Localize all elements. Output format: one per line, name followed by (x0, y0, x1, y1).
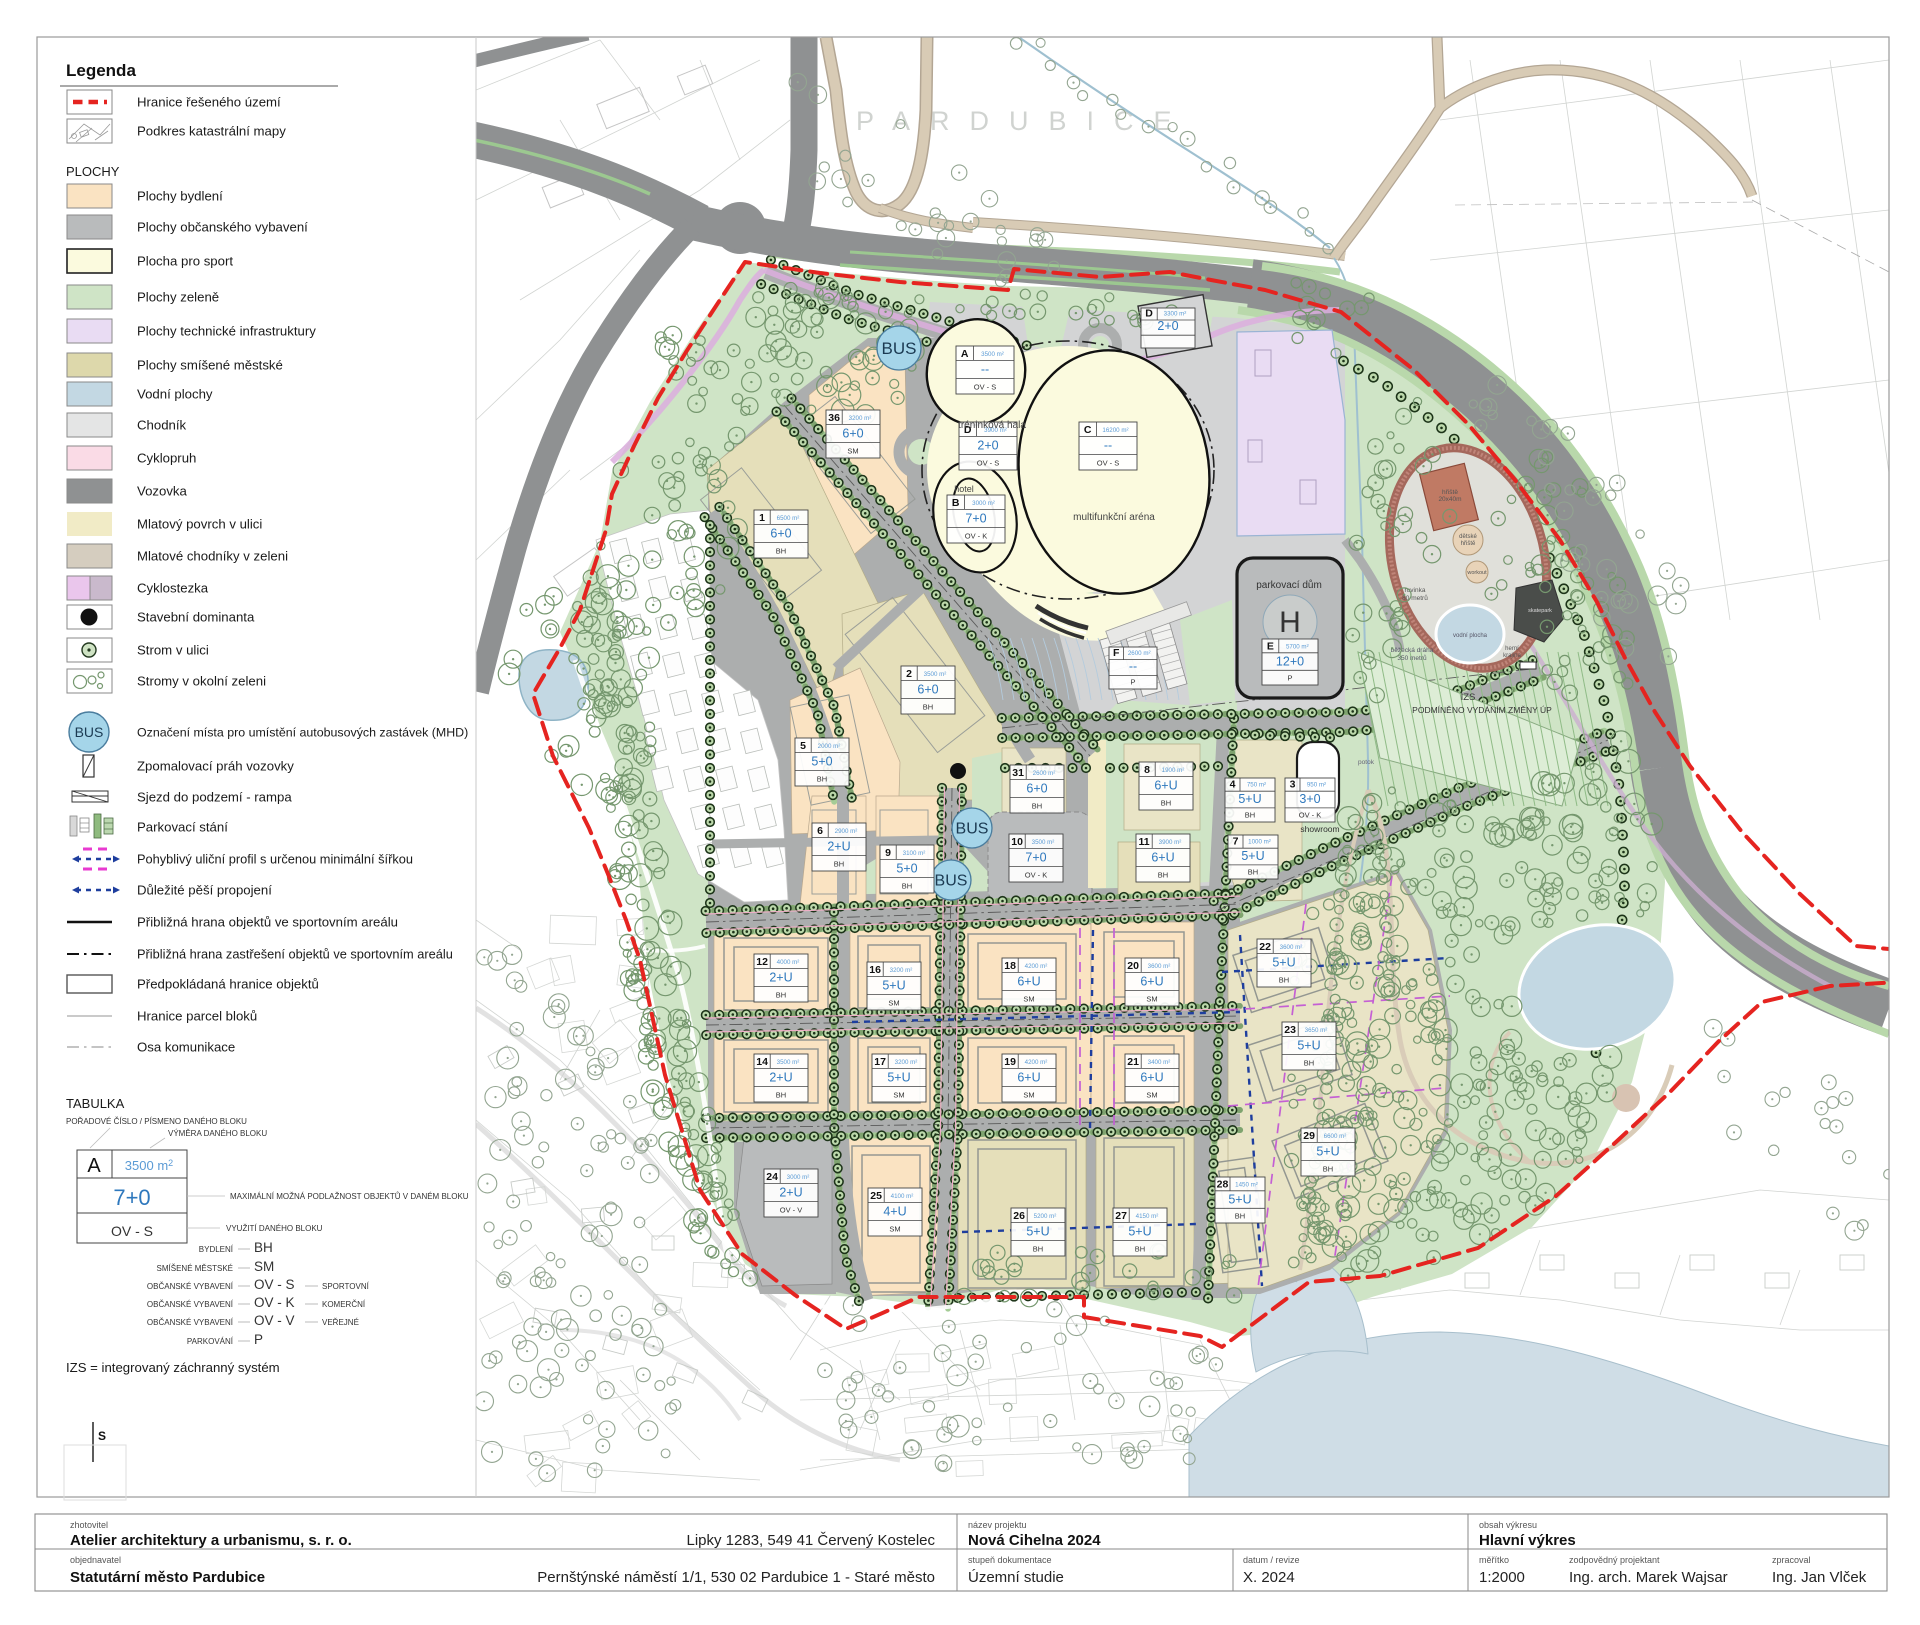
svg-text:21: 21 (1127, 1056, 1139, 1068)
svg-text:Plochy zeleně: Plochy zeleně (137, 290, 219, 305)
svg-text:Důležité pěší propojení: Důležité pěší propojení (137, 883, 272, 898)
svg-text:Nová Cihelna 2024: Nová Cihelna 2024 (968, 1532, 1101, 1549)
svg-text:OV - K: OV - K (1299, 811, 1322, 820)
svg-text:obsah výkresu: obsah výkresu (1479, 1520, 1537, 1530)
svg-text:3: 3 (1290, 779, 1296, 791)
svg-text:5+U: 5+U (1241, 849, 1264, 863)
svg-text:Vodní plochy: Vodní plochy (137, 387, 213, 402)
svg-text:2+U: 2+U (769, 971, 792, 985)
svg-text:SM: SM (1146, 1091, 1157, 1100)
svg-text:3500 m²: 3500 m² (924, 671, 947, 678)
svg-text:2600 m²: 2600 m² (1033, 770, 1056, 777)
svg-text:80 metrů: 80 metrů (1402, 594, 1428, 602)
svg-text:2+U: 2+U (827, 840, 850, 854)
svg-text:2+U: 2+U (779, 1186, 802, 1200)
svg-text:A: A (87, 1155, 101, 1177)
svg-text:PLOCHY: PLOCHY (66, 164, 120, 179)
svg-text:3200 m²: 3200 m² (895, 1059, 918, 1066)
svg-text:950 m²: 950 m² (1307, 782, 1326, 789)
svg-text:7+0: 7+0 (113, 1185, 150, 1210)
svg-text:4200 m²: 4200 m² (1025, 1059, 1048, 1066)
svg-text:6+U: 6+U (1017, 1071, 1040, 1085)
svg-text:3500 m²: 3500 m² (777, 1059, 800, 1066)
svg-text:5+0: 5+0 (896, 862, 917, 876)
svg-text:Stromy v okolní zeleni: Stromy v okolní zeleni (137, 674, 266, 689)
svg-text:běžecká dráha: běžecká dráha (1391, 647, 1434, 654)
svg-text:Sjezd do podzemí - rampa: Sjezd do podzemí - rampa (137, 790, 292, 805)
svg-text:Plochy smíšené městské: Plochy smíšené městské (137, 358, 283, 373)
svg-text:VYUŽITÍ DANÉHO BLOKU: VYUŽITÍ DANÉHO BLOKU (226, 1224, 323, 1233)
svg-text:POŘADOVÉ ČÍSLO / PÍSMENO DANÉH: POŘADOVÉ ČÍSLO / PÍSMENO DANÉHO BLOKU (66, 1117, 247, 1126)
svg-text:BH: BH (776, 547, 786, 556)
svg-text:9: 9 (885, 847, 891, 859)
svg-text:BH: BH (1304, 1059, 1314, 1068)
svg-text:4200 m²: 4200 m² (1025, 963, 1048, 970)
svg-text:2+0: 2+0 (977, 439, 998, 453)
svg-text:3600 m²: 3600 m² (1280, 944, 1303, 951)
svg-text:6600 m²: 6600 m² (1324, 1133, 1347, 1140)
svg-text:Parkovací stání: Parkovací stání (137, 820, 228, 835)
svg-text:Atelier architektury a urbanis: Atelier architektury a urbanismu, s. r. … (70, 1532, 352, 1549)
svg-text:12: 12 (756, 956, 768, 968)
svg-text:5+U: 5+U (1272, 956, 1295, 970)
svg-text:6: 6 (817, 825, 823, 837)
svg-text:BUS: BUS (75, 724, 104, 740)
svg-text:17: 17 (874, 1056, 886, 1068)
svg-text:6+U: 6+U (1140, 1071, 1163, 1085)
svg-text:3400 m²: 3400 m² (1148, 1059, 1171, 1066)
svg-text:BH: BH (1135, 1245, 1145, 1254)
svg-text:BUS: BUS (935, 873, 968, 890)
svg-text:BH: BH (1279, 976, 1289, 985)
svg-text:5+0: 5+0 (811, 755, 832, 769)
svg-text:Ing. Jan Vlček: Ing. Jan Vlček (1772, 1569, 1867, 1586)
svg-text:SM: SM (888, 999, 899, 1008)
svg-text:C: C (1084, 424, 1092, 436)
svg-text:3100 m²: 3100 m² (903, 850, 926, 857)
svg-text:BH: BH (834, 860, 844, 869)
svg-text:16200 m²: 16200 m² (1102, 427, 1128, 434)
svg-text:--: -- (1129, 660, 1137, 674)
svg-text:5700 m²: 5700 m² (1286, 643, 1309, 650)
svg-text:2+U: 2+U (769, 1071, 792, 1085)
svg-text:název projektu: název projektu (968, 1520, 1027, 1530)
svg-text:Plochy technické infrastruktur: Plochy technické infrastruktury (137, 324, 316, 339)
svg-text:24: 24 (766, 1171, 778, 1183)
svg-text:IZS = integrovaný záchranný sy: IZS = integrovaný záchranný systém (66, 1360, 280, 1375)
svg-text:BH: BH (902, 882, 912, 891)
svg-text:3300 m²: 3300 m² (1164, 311, 1187, 318)
svg-text:Označení místa pro umístění au: Označení místa pro umístění autobusových… (137, 726, 468, 740)
svg-text:OV - S: OV - S (111, 1223, 153, 1239)
svg-text:Lipky 1283, 549 41 Červený Kos: Lipky 1283, 549 41 Červený Kostelec (687, 1532, 936, 1549)
svg-text:BH: BH (776, 991, 786, 1000)
svg-text:5+U: 5+U (1238, 792, 1261, 806)
svg-text:4: 4 (1230, 779, 1236, 791)
svg-text:F: F (1113, 647, 1120, 659)
svg-text:BH: BH (1161, 799, 1171, 808)
svg-text:18: 18 (1004, 960, 1016, 972)
svg-text:KOMERČNÍ: KOMERČNÍ (322, 1300, 366, 1309)
svg-text:BH: BH (1245, 811, 1255, 820)
svg-text:22: 22 (1259, 941, 1271, 953)
svg-text:Hranice řešeného území: Hranice řešeného území (137, 95, 281, 110)
svg-text:P: P (1130, 678, 1135, 687)
svg-text:5+U: 5+U (882, 979, 905, 993)
svg-text:2+0: 2+0 (1157, 319, 1178, 333)
svg-text:Plocha pro sport: Plocha pro sport (137, 254, 233, 269)
svg-text:5200 m²: 5200 m² (1034, 1213, 1057, 1220)
svg-text:BUS: BUS (882, 339, 917, 358)
svg-text:4150 m²: 4150 m² (1136, 1213, 1159, 1220)
svg-text:SM: SM (847, 447, 858, 456)
svg-text:19: 19 (1004, 1056, 1016, 1068)
svg-text:herní: herní (1505, 646, 1519, 652)
svg-text:4+U: 4+U (883, 1205, 906, 1219)
svg-text:P: P (254, 1332, 263, 1347)
svg-text:BH: BH (1235, 1212, 1245, 1221)
svg-text:5: 5 (800, 740, 806, 752)
svg-text:PODMÍNĚNO VYDÁNÍM ZMĚNY ÚP: PODMÍNĚNO VYDÁNÍM ZMĚNY ÚP (1412, 705, 1552, 715)
svg-text:Plochy bydlení: Plochy bydlení (137, 189, 223, 204)
svg-text:Zpomalovací práh vozovky: Zpomalovací práh vozovky (137, 759, 294, 774)
svg-text:OV - K: OV - K (1025, 871, 1048, 880)
svg-text:Hlavní výkres: Hlavní výkres (1479, 1532, 1576, 1549)
svg-text:1: 1 (759, 512, 765, 524)
svg-text:Územní studie: Územní studie (968, 1569, 1064, 1586)
svg-text:3500 m2: 3500 m2 (125, 1158, 173, 1173)
svg-text:dětské: dětské (1459, 534, 1477, 540)
svg-text:29: 29 (1303, 1130, 1315, 1142)
svg-text:VÝMĚRA DANÉHO BLOKU: VÝMĚRA DANÉHO BLOKU (168, 1129, 267, 1138)
svg-text:měřítko: měřítko (1479, 1555, 1509, 1565)
svg-text:BH: BH (1323, 1165, 1333, 1174)
svg-text:krajina: krajina (1503, 653, 1521, 659)
svg-text:hřiště: hřiště (1442, 489, 1458, 496)
svg-text:SM: SM (893, 1091, 904, 1100)
svg-text:31: 31 (1012, 767, 1024, 779)
svg-text:6+U: 6+U (1154, 779, 1177, 793)
svg-text:zhotovitel: zhotovitel (70, 1520, 108, 1530)
svg-text:5+U: 5+U (887, 1071, 910, 1085)
svg-text:--: -- (1104, 439, 1112, 453)
svg-text:4100 m²: 4100 m² (891, 1193, 914, 1200)
svg-text:1000 m²: 1000 m² (1248, 839, 1271, 846)
svg-text:36: 36 (828, 412, 840, 424)
svg-text:BH: BH (1248, 868, 1258, 877)
svg-text:2: 2 (906, 668, 912, 680)
svg-text:12+0: 12+0 (1276, 654, 1304, 668)
svg-text:5+U: 5+U (1026, 1225, 1049, 1239)
svg-text:OBČANSKÉ VYBAVENÍ: OBČANSKÉ VYBAVENÍ (147, 1318, 234, 1327)
svg-text:Legenda: Legenda (66, 61, 136, 80)
svg-text:23: 23 (1284, 1024, 1296, 1036)
svg-text:3900 m²: 3900 m² (1159, 839, 1182, 846)
svg-text:workout: workout (1466, 570, 1487, 576)
svg-text:3000 m²: 3000 m² (787, 1174, 810, 1181)
svg-text:Předpokládaná hranice objektů: Předpokládaná hranice objektů (137, 977, 319, 992)
svg-text:Cyklostezka: Cyklostezka (137, 581, 209, 596)
svg-text:5+U: 5+U (1297, 1039, 1320, 1053)
svg-text:2900 m²: 2900 m² (835, 828, 858, 835)
svg-text:3+0: 3+0 (1299, 792, 1320, 806)
svg-text:OV - S: OV - S (254, 1277, 295, 1292)
svg-text:objednavatel: objednavatel (70, 1555, 121, 1565)
svg-text:zodpovědný projektant: zodpovědný projektant (1569, 1555, 1660, 1565)
svg-text:BH: BH (776, 1091, 786, 1100)
svg-text:Cyklopruh: Cyklopruh (137, 451, 196, 466)
svg-text:SM: SM (254, 1259, 274, 1274)
svg-text:VEŘEJNÉ: VEŘEJNÉ (322, 1318, 359, 1327)
svg-text:vodní plocha: vodní plocha (1453, 633, 1488, 639)
svg-text:8: 8 (1144, 764, 1150, 776)
svg-text:skatepark: skatepark (1528, 608, 1552, 614)
svg-text:5+U: 5+U (1128, 1225, 1151, 1239)
svg-text:rovinka: rovinka (1405, 587, 1426, 594)
svg-text:A: A (961, 348, 969, 360)
svg-text:2600 m²: 2600 m² (1128, 650, 1151, 657)
svg-text:6+0: 6+0 (770, 527, 791, 541)
svg-text:350 metrů: 350 metrů (1397, 654, 1427, 662)
svg-text:Podkres katastrální mapy: Podkres katastrální mapy (137, 124, 286, 139)
svg-text:Chodník: Chodník (137, 418, 187, 433)
svg-text:datum / revize: datum / revize (1243, 1555, 1300, 1565)
svg-text:20x40m: 20x40m (1438, 496, 1461, 503)
svg-text:3650 m²: 3650 m² (1305, 1027, 1328, 1034)
svg-text:3600 m²: 3600 m² (1148, 963, 1171, 970)
svg-text:OV - K: OV - K (965, 532, 988, 541)
svg-text:6+U: 6+U (1151, 851, 1174, 865)
svg-text:Pernštýnské náměstí 1/1, 530 0: Pernštýnské náměstí 1/1, 530 02 Pardubic… (537, 1569, 935, 1586)
svg-text:Mlatové chodníky v zeleni: Mlatové chodníky v zeleni (137, 549, 288, 564)
svg-text:6+0: 6+0 (842, 427, 863, 441)
svg-text:6+U: 6+U (1140, 975, 1163, 989)
svg-text:6+U: 6+U (1017, 975, 1040, 989)
svg-text:BYDLENÍ: BYDLENÍ (199, 1245, 234, 1254)
svg-text:5+U: 5+U (1316, 1145, 1339, 1159)
svg-text:11: 11 (1139, 836, 1150, 848)
svg-text:SMÍŠENÉ MĚSTSKÉ: SMÍŠENÉ MĚSTSKÉ (157, 1264, 233, 1273)
svg-text:750 m²: 750 m² (1247, 782, 1266, 789)
svg-text:28: 28 (1217, 1178, 1229, 1190)
svg-text:Vozovka: Vozovka (137, 484, 188, 499)
svg-text:SM: SM (1023, 1091, 1034, 1100)
svg-text:4000 m²: 4000 m² (777, 959, 800, 966)
svg-text:2000 m²: 2000 m² (818, 743, 841, 750)
svg-text:Statutární město Pardubice: Statutární město Pardubice (70, 1569, 265, 1586)
svg-text:3200 m²: 3200 m² (890, 967, 913, 974)
svg-text:7+0: 7+0 (1025, 851, 1046, 865)
svg-text:10: 10 (1011, 836, 1023, 848)
svg-text:BH: BH (1158, 871, 1168, 880)
svg-text:6+0: 6+0 (917, 683, 938, 697)
svg-text:B: B (952, 497, 960, 509)
svg-text:OV - S: OV - S (1097, 459, 1120, 468)
svg-text:20: 20 (1127, 960, 1139, 972)
svg-text:1:2000: 1:2000 (1479, 1569, 1525, 1586)
svg-text:5+U: 5+U (1228, 1192, 1251, 1206)
svg-text:Plochy občanského vybavení: Plochy občanského vybavení (137, 220, 308, 235)
svg-text:Strom v ulici: Strom v ulici (137, 643, 209, 658)
svg-text:BH: BH (1033, 1245, 1043, 1254)
svg-text:MAXIMÁLNÍ MOŽNÁ PODLAŽNOST OBJ: MAXIMÁLNÍ MOŽNÁ PODLAŽNOST OBJEKTŮ V DAN… (230, 1192, 469, 1201)
svg-text:Hranice parcel bloků: Hranice parcel bloků (137, 1009, 257, 1024)
svg-text:stupeň dokumentace: stupeň dokumentace (968, 1555, 1052, 1565)
svg-text:3000 m²: 3000 m² (972, 500, 995, 507)
svg-text:P: P (1287, 674, 1292, 683)
svg-text:14: 14 (756, 1056, 768, 1068)
svg-text:H: H (1279, 606, 1301, 639)
svg-text:OV - S: OV - S (974, 383, 997, 392)
svg-text:Osa komunikace: Osa komunikace (137, 1040, 235, 1055)
svg-text:1900 m²: 1900 m² (1162, 767, 1185, 774)
svg-text:OV - V: OV - V (780, 1206, 803, 1215)
svg-text:BUS: BUS (956, 821, 989, 838)
svg-text:PARKOVÁNÍ: PARKOVÁNÍ (187, 1337, 234, 1346)
svg-text:SM: SM (1146, 995, 1157, 1004)
svg-text:parkovací dům: parkovací dům (1256, 579, 1322, 591)
svg-text:26: 26 (1013, 1210, 1025, 1222)
svg-text:hotel: hotel (954, 484, 974, 494)
svg-text:6500 m²: 6500 m² (777, 515, 800, 522)
svg-text:D: D (1145, 308, 1153, 320)
svg-text:SPORTOVNÍ: SPORTOVNÍ (322, 1282, 370, 1291)
svg-text:TABULKA: TABULKA (66, 1096, 125, 1111)
svg-text:Přibližná hrana objektů ve spo: Přibližná hrana objektů ve sportovním ar… (137, 915, 398, 930)
svg-text:OBČANSKÉ VYBAVENÍ: OBČANSKÉ VYBAVENÍ (147, 1282, 234, 1291)
svg-text:--: -- (981, 363, 989, 377)
svg-text:6+0: 6+0 (1026, 782, 1047, 796)
svg-text:showroom: showroom (1300, 824, 1339, 834)
svg-text:potok: potok (1358, 759, 1375, 766)
svg-text:E: E (1267, 640, 1274, 652)
svg-text:Stavební dominanta: Stavební dominanta (137, 610, 255, 625)
svg-text:25: 25 (870, 1190, 882, 1202)
svg-text:BH: BH (254, 1240, 273, 1255)
svg-text:3200 m²: 3200 m² (849, 415, 872, 422)
svg-text:BH: BH (1032, 802, 1042, 811)
svg-text:X. 2024: X. 2024 (1243, 1569, 1295, 1586)
svg-text:7: 7 (1233, 836, 1239, 848)
svg-text:tréninková hala: tréninková hala (958, 420, 1026, 431)
svg-text:IZS: IZS (1461, 692, 1476, 703)
svg-text:Mlatový povrch v ulici: Mlatový povrch v ulici (137, 517, 262, 532)
svg-text:Ing. arch. Marek Wajsar: Ing. arch. Marek Wajsar (1569, 1569, 1728, 1586)
svg-text:7+0: 7+0 (965, 512, 986, 526)
svg-text:OV - K: OV - K (254, 1295, 295, 1310)
svg-text:3500 m²: 3500 m² (981, 351, 1004, 358)
svg-text:SM: SM (889, 1225, 900, 1234)
svg-text:16: 16 (869, 964, 881, 976)
svg-text:27: 27 (1115, 1210, 1127, 1222)
svg-text:Přibližná hrana zastřešení obj: Přibližná hrana zastřešení objektů ve sp… (137, 947, 453, 962)
svg-text:S: S (98, 1429, 106, 1443)
svg-text:BH: BH (817, 775, 827, 784)
svg-text:3500 m²: 3500 m² (1032, 839, 1055, 846)
svg-text:SM: SM (1023, 995, 1034, 1004)
svg-text:1450 m²: 1450 m² (1235, 1181, 1258, 1188)
svg-text:Pohyblivý uliční profil s urče: Pohyblivý uliční profil s určenou minimá… (137, 852, 413, 867)
svg-text:zpracoval: zpracoval (1772, 1555, 1811, 1565)
svg-text:OV - S: OV - S (977, 459, 1000, 468)
svg-text:multifunkční aréna: multifunkční aréna (1073, 512, 1155, 523)
svg-text:OBČANSKÉ VYBAVENÍ: OBČANSKÉ VYBAVENÍ (147, 1300, 234, 1309)
svg-text:OV - V: OV - V (254, 1313, 295, 1328)
svg-text:hřiště: hřiště (1461, 541, 1476, 547)
svg-text:BH: BH (923, 703, 933, 712)
